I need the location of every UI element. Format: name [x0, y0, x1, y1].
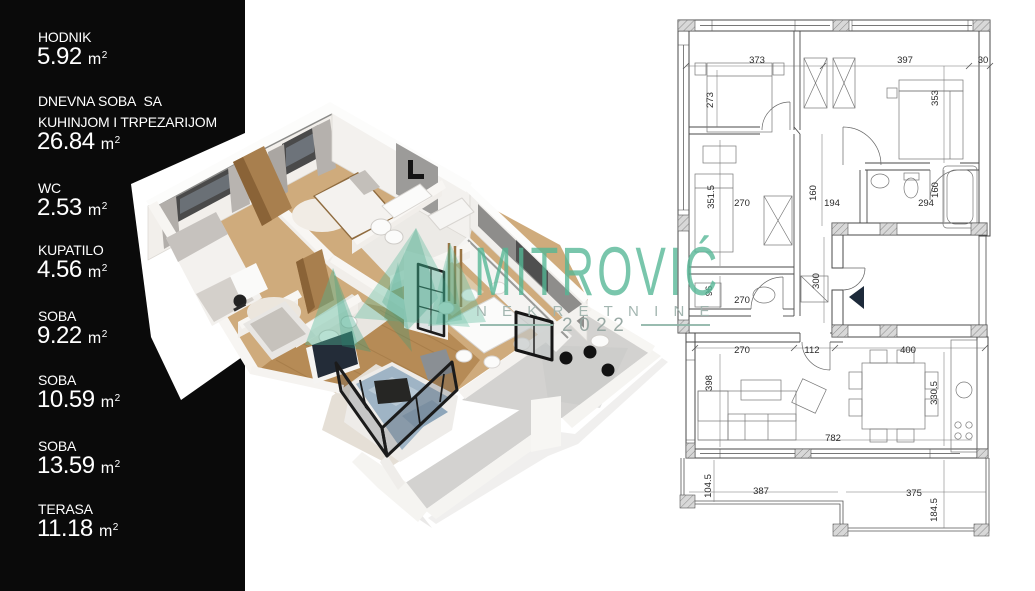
- svg-text:397: 397: [897, 55, 913, 66]
- svg-text:30: 30: [978, 55, 989, 66]
- svg-text:375: 375: [906, 488, 922, 499]
- svg-text:270: 270: [734, 345, 750, 356]
- svg-text:294: 294: [918, 198, 934, 209]
- svg-text:273: 273: [705, 92, 716, 108]
- svg-text:330.5: 330.5: [929, 381, 940, 405]
- svg-text:2022: 2022: [562, 315, 630, 336]
- svg-text:373: 373: [749, 55, 765, 66]
- svg-text:194: 194: [824, 198, 840, 209]
- svg-text:184.5: 184.5: [929, 498, 940, 522]
- svg-text:MITROVIĆ: MITROVIĆ: [474, 234, 720, 311]
- svg-text:160: 160: [808, 185, 819, 201]
- svg-text:398: 398: [704, 375, 715, 391]
- svg-text:300: 300: [811, 273, 822, 289]
- svg-text:104.5: 104.5: [703, 474, 714, 498]
- svg-text:782: 782: [825, 433, 841, 444]
- svg-text:270: 270: [734, 295, 750, 306]
- svg-text:400: 400: [900, 345, 916, 356]
- svg-text:112: 112: [804, 345, 819, 356]
- svg-text:387: 387: [753, 486, 769, 497]
- svg-text:270: 270: [734, 198, 750, 209]
- svg-text:160: 160: [930, 182, 941, 198]
- svg-text:353: 353: [930, 90, 941, 106]
- svg-text:351.5: 351.5: [706, 185, 717, 209]
